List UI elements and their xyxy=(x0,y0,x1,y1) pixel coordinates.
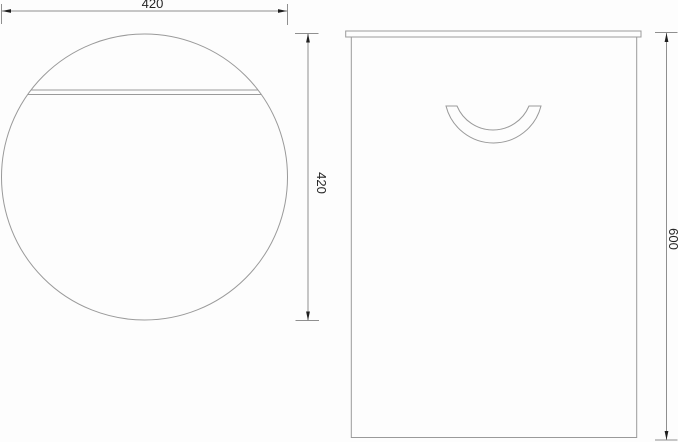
front-view-body xyxy=(351,37,636,438)
drawing-canvas: 420 420 600 xyxy=(0,0,678,442)
top-view-circle xyxy=(2,34,288,320)
depth-arrow-top xyxy=(306,34,310,43)
width-arrow-left xyxy=(2,9,11,13)
handle-cutout xyxy=(446,106,541,143)
width-dimension-label: 420 xyxy=(142,0,164,11)
width-arrow-right xyxy=(278,9,287,13)
height-dimension-label: 600 xyxy=(666,228,678,250)
height-arrow-top xyxy=(665,33,669,42)
front-view-lid xyxy=(346,31,641,37)
depth-dimension-label: 420 xyxy=(314,172,328,194)
height-arrow-bottom xyxy=(665,431,669,440)
technical-drawing xyxy=(0,0,678,442)
depth-arrow-bottom xyxy=(306,312,310,321)
